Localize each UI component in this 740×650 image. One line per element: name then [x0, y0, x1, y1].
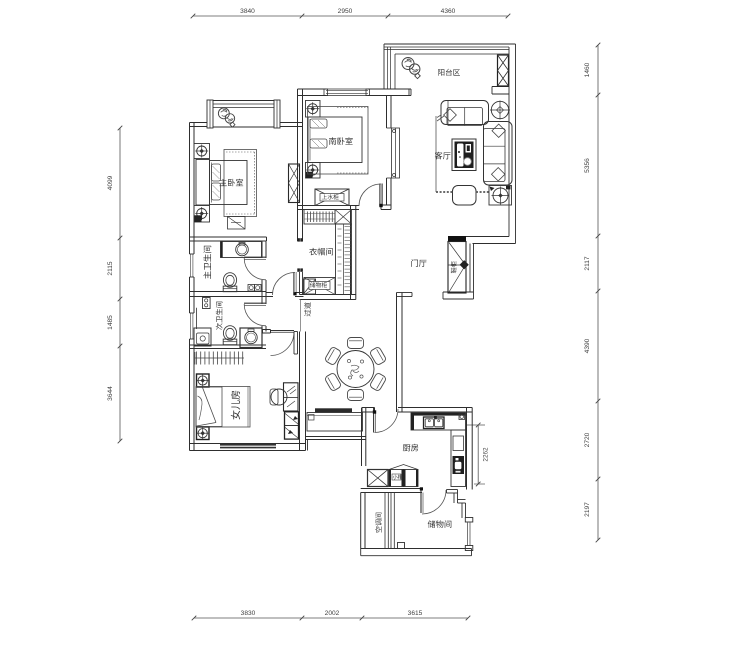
svg-text:2002: 2002 [325, 610, 340, 617]
svg-text:3830: 3830 [241, 610, 256, 617]
svg-text:4099: 4099 [107, 175, 114, 190]
svg-text:4390: 4390 [584, 338, 591, 353]
svg-text:2117: 2117 [584, 256, 591, 271]
svg-text:1460: 1460 [584, 62, 591, 77]
svg-text:2115: 2115 [107, 261, 114, 276]
svg-text:3615: 3615 [408, 610, 423, 617]
svg-text:4360: 4360 [441, 8, 456, 15]
svg-text:5356: 5356 [584, 158, 591, 173]
svg-text:2262: 2262 [483, 447, 490, 462]
svg-text:3644: 3644 [107, 386, 114, 401]
svg-text:2197: 2197 [584, 502, 591, 517]
svg-text:2950: 2950 [338, 8, 353, 15]
svg-text:3840: 3840 [240, 8, 255, 15]
svg-text:2720: 2720 [584, 432, 591, 447]
svg-text:1485: 1485 [107, 315, 114, 330]
